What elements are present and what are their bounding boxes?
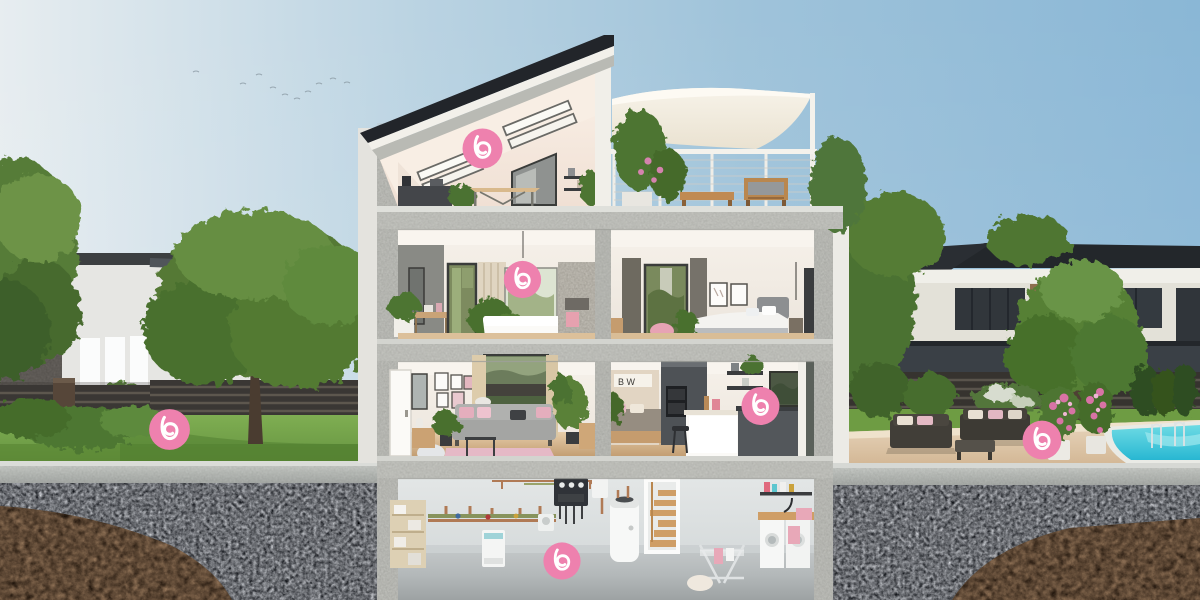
svg-text:B W: B W [618,377,636,387]
